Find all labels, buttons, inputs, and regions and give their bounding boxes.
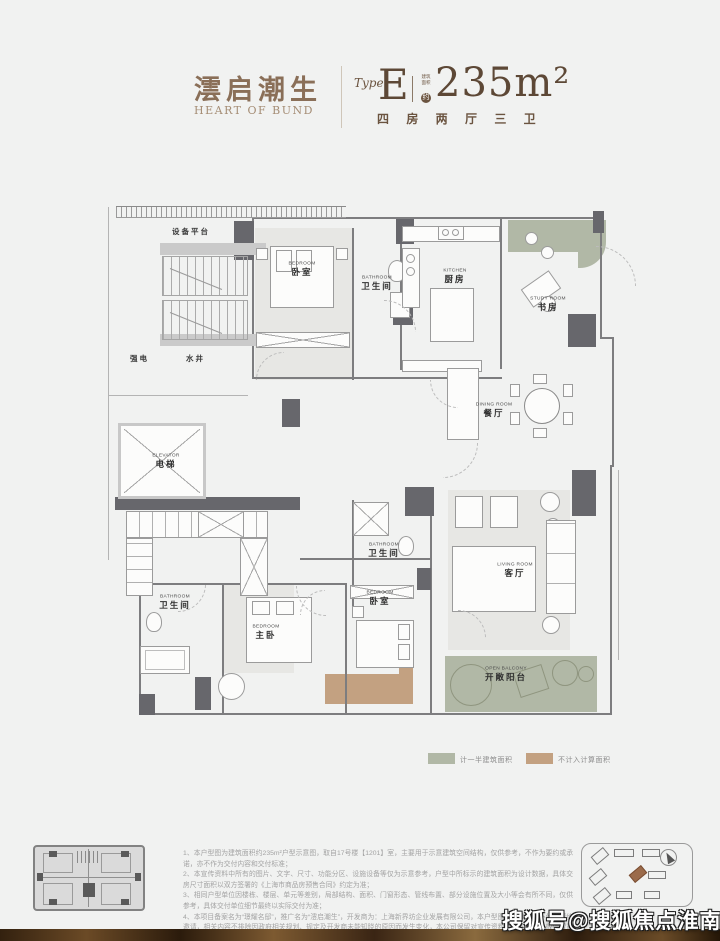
keyplan-unit [43, 853, 73, 873]
room-cn: 卫生间 [337, 281, 417, 291]
deck-edge [618, 470, 619, 660]
wall-right-mid [612, 337, 614, 467]
project-title: 澐启潮生 [194, 68, 328, 107]
cabinet-x [198, 511, 244, 538]
excluded-area-strip [325, 674, 409, 704]
room-en: STUDY ROOM [516, 296, 580, 302]
tv-wall [572, 470, 596, 516]
room-label-kitchen: KITCHEN 厨房 [415, 267, 495, 284]
note-1: 1、本户型图为建筑面积约235m²户型示意图，取自17号楼【1201】室，主要用… [183, 849, 573, 870]
column [568, 314, 596, 347]
living-rug [452, 546, 536, 612]
beam [160, 243, 266, 255]
legend-swatch-excluded-area [526, 753, 553, 764]
column [282, 399, 300, 427]
keyplan-unit [43, 883, 73, 905]
area-value: 235m² [435, 60, 570, 106]
floorplan-poster: 澐启潮生 HEART OF BUND Type E 建筑 面积 约 235m² … [0, 0, 720, 941]
area-badge-line1: 建筑 [420, 74, 433, 79]
room-en: BATHROOM [352, 542, 416, 548]
room-en: DINING ROOM [462, 402, 526, 408]
room-en: LIVING ROOM [483, 562, 547, 568]
keyplan-core [49, 851, 57, 857]
room-label-open-balcony: OPEN BALCONY 开敞阳台 [456, 665, 556, 682]
room-en: BATHROOM [143, 594, 207, 600]
annotation-equipment-platform: 设备平台 [172, 226, 210, 237]
room-en: BATHROOM [345, 275, 409, 281]
annotation-strong-electric: 强电 [130, 353, 149, 364]
stair-flight [162, 300, 248, 340]
nightstand [256, 248, 268, 260]
room-en: BEDROOM [348, 590, 412, 596]
room-cn: 开敞阳台 [456, 672, 556, 682]
room-label-living: LIVING ROOM 客厅 [475, 561, 555, 578]
column [593, 211, 604, 233]
room-en: OPEN BALCONY [466, 666, 546, 672]
room-cn: 卫生间 [344, 548, 424, 558]
room-label-dining: DINING ROOM 餐厅 [454, 401, 534, 418]
nightstand [336, 248, 348, 260]
room-label-bedroom2: BEDROOM 卧室 [340, 589, 420, 606]
wall-right-lower [610, 465, 612, 715]
keyplan-line [38, 877, 140, 878]
side-table [542, 616, 560, 634]
kitchen-island [430, 288, 474, 342]
project-subtitle: HEART OF BUND [194, 104, 326, 117]
room-label-bathroom-top: BATHROOM 卫生间 [337, 274, 417, 291]
area-badge: 建筑 面积 约 [419, 74, 433, 104]
keyplan-core [121, 851, 129, 857]
armchair [490, 496, 518, 528]
siteplan-building [642, 849, 660, 857]
siteplan-building [614, 849, 634, 857]
room-en: KITCHEN [423, 268, 487, 274]
room-cn: 餐厅 [454, 408, 534, 418]
area-badge-circle: 约 [421, 93, 431, 103]
keyplan-core [37, 873, 43, 881]
cabinet-run [126, 538, 153, 596]
pillow [276, 601, 294, 615]
pillow [252, 601, 270, 615]
layout-description: 四 房 两 厅 三 卫 [377, 110, 543, 127]
keyplan-core [135, 873, 141, 881]
column [139, 694, 155, 715]
wall-bottom [140, 713, 612, 715]
sink [406, 254, 415, 263]
toilet [146, 612, 162, 632]
room-label-bathroom-mid: BATHROOM 卫生间 [344, 541, 424, 558]
excluded-area-small [399, 664, 413, 704]
north-compass-icon [660, 849, 677, 866]
side-table [540, 492, 560, 512]
wall-bedroom2-right [430, 500, 432, 713]
room-cn: 主卧 [226, 630, 306, 640]
column [417, 568, 431, 590]
balcony-stool [578, 666, 594, 682]
room-cn: 卧室 [262, 267, 342, 277]
siteplan-building [644, 891, 660, 899]
room-cn: 卫生间 [135, 600, 215, 610]
siteplan-building [616, 891, 632, 899]
header-divider [341, 66, 342, 128]
legend-swatch-half-area [428, 753, 455, 764]
room-en: ELEVATOR [134, 453, 198, 459]
type-separator [412, 76, 413, 102]
siteplan-building [648, 871, 666, 879]
keyplan-core [121, 899, 129, 905]
nightstand [352, 606, 364, 618]
room-label-elevator: ELEVATOR 电梯 [126, 452, 206, 469]
watermark: 搜狐号@搜狐焦点淮南站 [502, 905, 720, 935]
dining-chair [510, 384, 520, 397]
cabinet-run [126, 511, 268, 538]
type-value: E [378, 60, 409, 109]
room-label-study: STUDY ROOM 书房 [508, 295, 588, 312]
burner [442, 229, 449, 236]
dining-chair [533, 374, 547, 384]
column [405, 487, 434, 516]
room-cn: 厨房 [415, 274, 495, 284]
legend-label-excluded-area: 不计入计算面积 [558, 755, 611, 765]
annotation-water-well: 水井 [186, 353, 205, 364]
room-label-bathroom-ll: BATHROOM 卫生间 [135, 593, 215, 610]
room-cn: 书房 [508, 302, 588, 312]
building-key-plan [33, 845, 145, 911]
room-cn: 电梯 [126, 459, 206, 469]
keyplan-stairs [77, 851, 101, 863]
room-label-master: BEDROOM 主卧 [226, 623, 306, 640]
wall-bed-bath [352, 228, 354, 380]
core-outline-left [108, 207, 109, 560]
stair-flight [162, 256, 248, 296]
platform-hatch [116, 206, 346, 218]
core-outline-mid [108, 395, 248, 396]
pillow [398, 624, 410, 640]
compass-needle [663, 851, 675, 864]
keyplan-core [49, 899, 57, 905]
room-en: BEDROOM [234, 624, 298, 630]
door-arc [352, 300, 416, 364]
room-en: BEDROOM [270, 261, 334, 267]
room-cn: 客厅 [475, 568, 555, 578]
pillow [398, 644, 410, 660]
column [195, 677, 211, 710]
room-cn: 卧室 [340, 596, 420, 606]
cabinet-x [240, 538, 268, 596]
dining-chair [563, 412, 573, 425]
wardrobe [256, 332, 350, 348]
stool [541, 246, 554, 259]
burner [452, 229, 459, 236]
dining-chair [533, 428, 547, 438]
bathtub-inner [145, 650, 185, 670]
note-2: 2、本宣传资料中所有的图片、文字、尺寸、功能分区、设施设备等仅为示意参考，户型中… [183, 870, 573, 891]
armchair [455, 496, 483, 528]
shower [353, 502, 389, 536]
legend-label-half-area: 计一半建筑面积 [460, 755, 513, 765]
dining-chair [563, 384, 573, 397]
keyplan-core [83, 883, 95, 897]
area-badge-line2: 面积 [420, 80, 433, 85]
wall-kitchen-right [500, 219, 502, 369]
room-label-bedroom: BEDROOM 卧室 [262, 260, 342, 277]
stool [525, 232, 538, 245]
lounge-chair [218, 673, 245, 700]
